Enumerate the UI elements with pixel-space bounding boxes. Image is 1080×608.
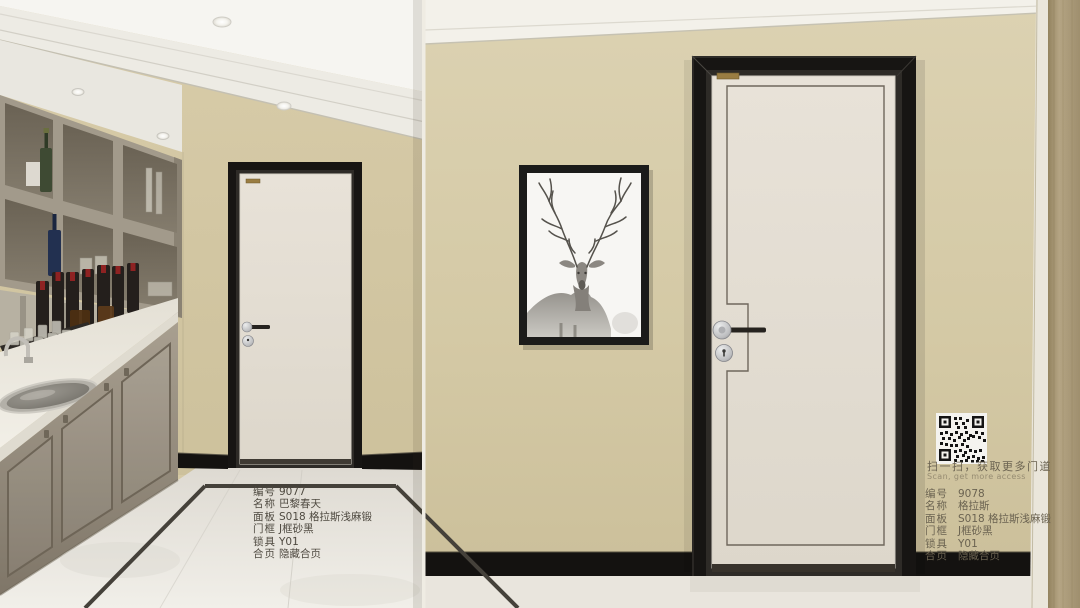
spec-label: 编号 xyxy=(925,488,947,500)
door-lock xyxy=(716,345,733,362)
door-9078 xyxy=(684,56,925,576)
spec-label: 合页 xyxy=(253,548,276,560)
spec-value: J框砂黑 xyxy=(279,523,314,535)
door-showcase-photo: 编号9077 名称巴黎春天 面板S018 格拉斯浅麻锻 门框J框砂黑 锁具Y01… xyxy=(0,0,1080,608)
spec-row: 合页隐藏合页 xyxy=(253,548,372,560)
spec-row: 锁具Y01 xyxy=(925,538,1051,550)
spec-label: 面板 xyxy=(925,513,947,525)
spec-label: 合页 xyxy=(925,550,947,562)
spec-label: 门框 xyxy=(253,523,276,535)
spec-label: 面板 xyxy=(253,511,276,523)
scan-prompt-en: Scan, get more access xyxy=(927,472,1026,481)
spec-value: Y01 xyxy=(958,538,978,550)
spec-row: 门框J框砂黑 xyxy=(925,525,1051,537)
spec-value: 隐藏合页 xyxy=(279,548,321,560)
wall-edge-highlight xyxy=(422,0,426,608)
spec-value: 格拉斯 xyxy=(958,500,990,512)
spec-row: 编号9078 xyxy=(925,488,1051,500)
spec-row: 面板S018 格拉斯浅麻锻 xyxy=(253,511,372,523)
door-panel xyxy=(240,174,351,464)
spec-value: S018 格拉斯浅麻锻 xyxy=(958,513,1051,525)
spec-row: 名称格拉斯 xyxy=(925,500,1051,512)
scene-graphics xyxy=(0,0,1080,608)
spec-label: 名称 xyxy=(253,498,276,510)
spec-row: 门框J框砂黑 xyxy=(253,523,372,535)
side-wall xyxy=(1048,0,1080,608)
wall-edge-shadow xyxy=(413,0,423,608)
left-product-specs: 编号9077 名称巴黎春天 面板S018 格拉斯浅麻锻 门框J框砂黑 锁具Y01… xyxy=(253,486,372,561)
spec-label: 锁具 xyxy=(253,536,276,548)
door-lock xyxy=(243,336,254,347)
qr-code xyxy=(936,413,987,464)
spec-value: 9077 xyxy=(279,486,306,498)
brand-plate xyxy=(246,179,260,183)
picture-frame xyxy=(519,165,653,350)
spec-label: 编号 xyxy=(253,486,276,498)
door-panel xyxy=(712,76,895,568)
spec-row: 锁具Y01 xyxy=(253,536,372,548)
spec-value: 巴黎春天 xyxy=(279,498,321,510)
spec-row: 面板S018 格拉斯浅麻锻 xyxy=(925,513,1051,525)
spec-row: 名称巴黎春天 xyxy=(253,498,372,510)
spec-row: 合页隐藏合页 xyxy=(925,550,1051,562)
brand-plate xyxy=(717,73,739,79)
right-product-specs: 编号9078 名称格拉斯 面板S018 格拉斯浅麻锻 门框J框砂黑 锁具Y01 … xyxy=(925,488,1051,562)
spec-value: 9078 xyxy=(958,488,985,500)
spec-label: 锁具 xyxy=(925,538,947,550)
spec-label: 门框 xyxy=(925,525,947,537)
spec-value: 隐藏合页 xyxy=(958,550,1000,562)
spec-row: 编号9077 xyxy=(253,486,372,498)
spec-value: Y01 xyxy=(279,536,299,548)
spec-value: J框砂黑 xyxy=(958,525,993,537)
spec-label: 名称 xyxy=(925,500,947,512)
spec-value: S018 格拉斯浅麻锻 xyxy=(279,511,372,523)
door-9077 xyxy=(228,162,362,468)
